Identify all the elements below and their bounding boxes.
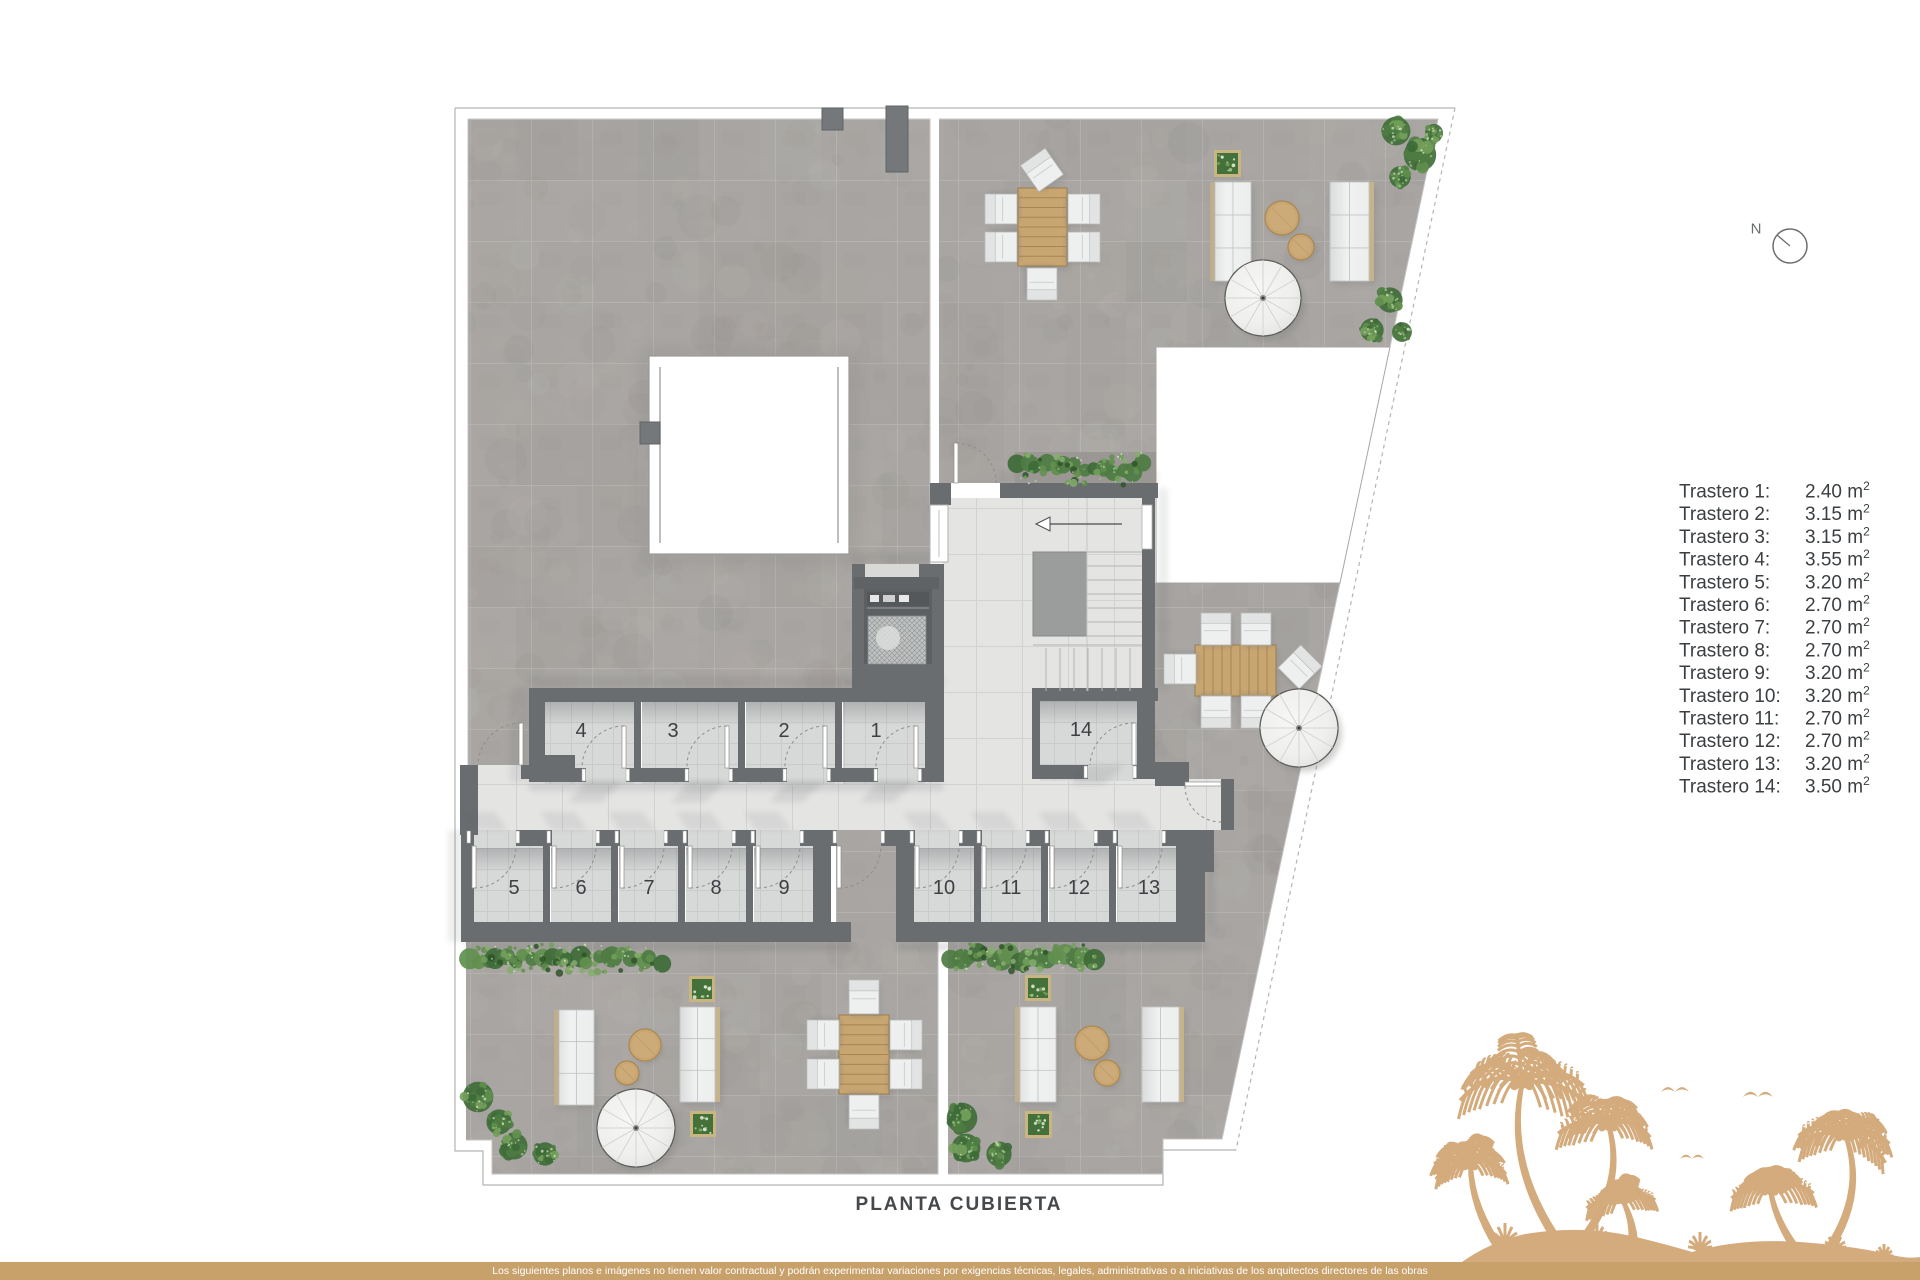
svg-text:3.50 m2: 3.50 m2 [1805,774,1870,798]
svg-text:Trastero 11:: Trastero 11: [1679,709,1779,730]
svg-text:3.15 m2: 3.15 m2 [1805,524,1870,548]
svg-text:4: 4 [575,720,586,742]
svg-text:3: 3 [667,720,678,742]
svg-text:8: 8 [710,877,721,899]
svg-text:3.20 m2: 3.20 m2 [1805,751,1870,775]
svg-text:7: 7 [643,877,654,899]
svg-text:3.15 m2: 3.15 m2 [1805,502,1870,526]
svg-text:2.70 m2: 2.70 m2 [1805,615,1870,639]
svg-text:Trastero 12:: Trastero 12: [1679,731,1781,752]
svg-text:6: 6 [575,877,586,899]
svg-text:2: 2 [778,720,789,742]
svg-text:1: 1 [870,720,881,742]
svg-text:Los siguientes planos e imágen: Los siguientes planos e imágenes no tien… [492,1265,1428,1277]
svg-text:10: 10 [933,877,955,899]
svg-text:3.55 m2: 3.55 m2 [1805,547,1870,571]
svg-text:Trastero 14:: Trastero 14: [1679,777,1781,798]
svg-text:3.20 m2: 3.20 m2 [1805,683,1870,707]
svg-text:Trastero 10:: Trastero 10: [1679,686,1781,707]
svg-text:Trastero 2:: Trastero 2: [1679,504,1770,525]
svg-text:14: 14 [1070,719,1092,741]
svg-text:Trastero 13:: Trastero 13: [1679,754,1781,775]
svg-text:Trastero 6:: Trastero 6: [1679,595,1770,616]
svg-text:3.20 m2: 3.20 m2 [1805,661,1870,685]
svg-text:2.70 m2: 2.70 m2 [1805,706,1870,730]
svg-text:Trastero 1:: Trastero 1: [1679,482,1770,503]
svg-text:PLANTA CUBIERTA: PLANTA CUBIERTA [856,1194,1063,1215]
svg-text:Trastero 3:: Trastero 3: [1679,527,1770,548]
svg-text:5: 5 [508,877,519,899]
svg-text:Trastero 8:: Trastero 8: [1679,640,1770,661]
svg-text:2.40 m2: 2.40 m2 [1805,479,1870,503]
svg-text:11: 11 [1001,877,1022,899]
svg-text:Trastero 5:: Trastero 5: [1679,572,1770,593]
svg-text:2.70 m2: 2.70 m2 [1805,638,1870,662]
svg-text:9: 9 [778,877,789,899]
svg-text:3.20 m2: 3.20 m2 [1805,570,1870,594]
svg-text:12: 12 [1068,877,1090,899]
svg-text:Trastero 7:: Trastero 7: [1679,618,1770,639]
svg-text:Trastero 4:: Trastero 4: [1679,550,1770,571]
svg-text:2.70 m2: 2.70 m2 [1805,729,1870,753]
svg-text:13: 13 [1138,877,1160,899]
svg-text:Trastero 9:: Trastero 9: [1679,663,1770,684]
svg-text:N: N [1751,221,1762,238]
svg-text:2.70 m2: 2.70 m2 [1805,593,1870,617]
